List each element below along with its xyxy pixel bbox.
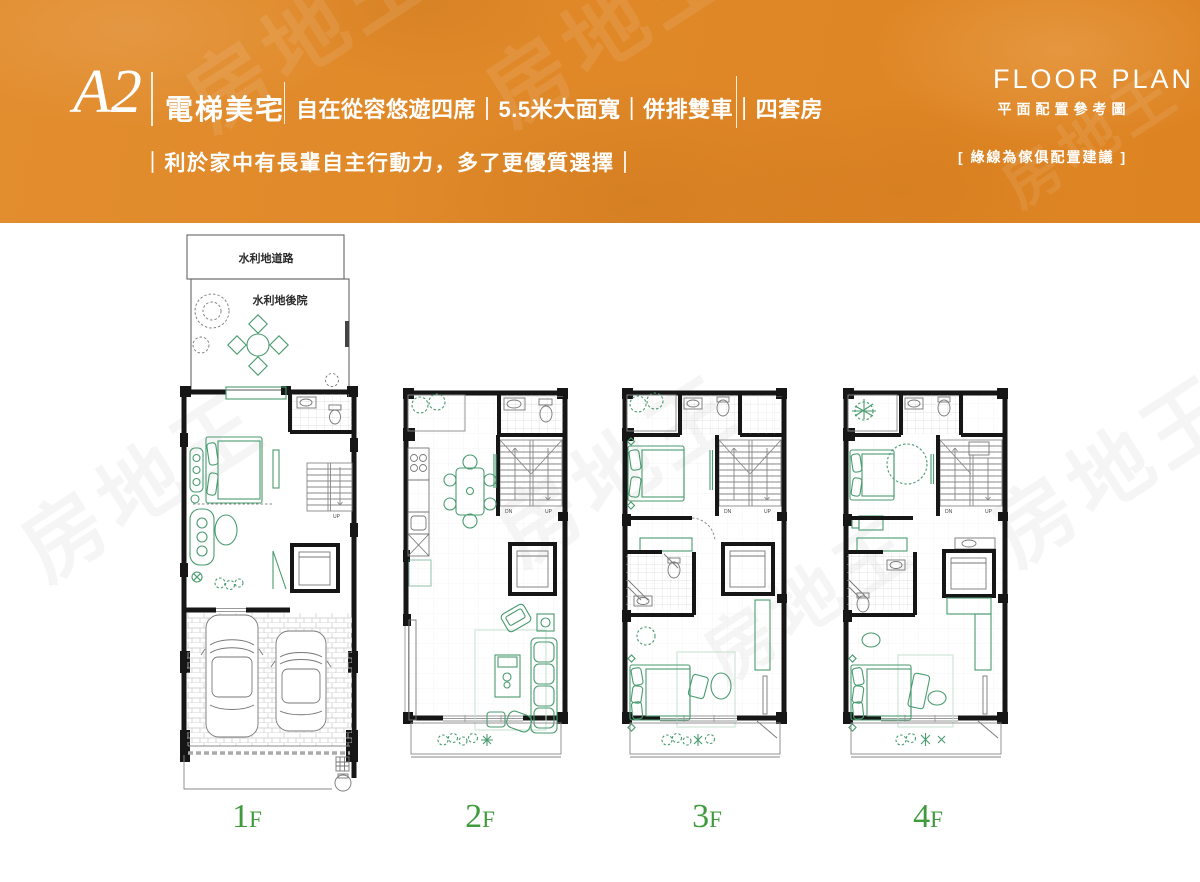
floor-suffix: F — [709, 807, 722, 832]
legend-note: [ 綠線為傢俱配置建議 ] — [958, 147, 1138, 167]
floor-number: 1 — [232, 798, 249, 835]
stairs: UP — [307, 463, 352, 520]
bench-seat — [190, 448, 203, 503]
patio-table-set — [228, 315, 288, 375]
floor-suffix: F — [482, 807, 495, 832]
yard: 水利地道路 水利地後院 — [187, 235, 349, 390]
svg-text:UP: UP — [545, 509, 553, 515]
floor-suffix: F — [930, 807, 943, 832]
bathroom — [499, 393, 565, 435]
svg-text:DN: DN — [505, 509, 513, 515]
bathroom-2 — [626, 552, 694, 615]
svg-text:DN: DN — [945, 509, 953, 515]
bathroom — [290, 392, 354, 432]
watermark: 房地王 — [459, 0, 750, 148]
floor-suffix: F — [249, 807, 262, 832]
svg-text:UP: UP — [985, 509, 993, 515]
bush — [193, 337, 209, 353]
car-2 — [271, 631, 331, 731]
floor-label-2f: 2F — [450, 798, 510, 840]
tagline: 自在從容悠遊四席｜5.5米大面寬｜併排雙車｜四套房 — [296, 92, 823, 124]
floor-drain — [192, 572, 202, 582]
chaise-sofa — [190, 509, 214, 565]
floor-number: 2 — [465, 798, 482, 835]
backyard-label: 水利地後院 — [253, 293, 308, 307]
garage — [184, 609, 352, 792]
floor-plan-2f: DN UP — [403, 388, 568, 773]
divider — [736, 76, 737, 128]
svg-text:UP: UP — [333, 514, 341, 520]
floor-number: 3 — [692, 798, 709, 835]
floor-number: 4 — [913, 798, 930, 835]
entry-steps — [226, 387, 286, 399]
road-label: 水利地道路 — [239, 251, 295, 265]
door-panel — [273, 551, 286, 589]
tree — [195, 294, 229, 328]
bathroom-2 — [847, 552, 915, 615]
side-table — [215, 515, 237, 545]
balcony — [630, 723, 780, 757]
car-1 — [201, 615, 263, 737]
page: 房地王 房地王 房地王 A2 電梯美宅 自在從容悠遊四席｜5.5米大面寬｜併排雙… — [0, 0, 1200, 882]
bed — [206, 437, 262, 503]
bathroom — [680, 393, 784, 435]
bush — [326, 374, 339, 387]
balcony — [851, 723, 1001, 757]
subtitle: ｜利於家中有長輩自主行動力，多了更優質選擇｜ — [142, 147, 637, 177]
svg-text:UP: UP — [764, 509, 772, 515]
floor-plan-1f: 水利地道路 水利地後院 — [180, 233, 358, 793]
floor-label-3f: 3F — [677, 798, 737, 840]
plant — [215, 578, 243, 590]
floor-plan-title-zh: 平面配置參考圖 — [993, 99, 1135, 119]
cabinet — [273, 450, 279, 488]
watermark: 房地王 — [159, 0, 450, 153]
divider — [151, 72, 153, 126]
header-banner: 房地王 房地王 房地王 A2 電梯美宅 自在從容悠遊四席｜5.5米大面寬｜併排雙… — [0, 0, 1200, 223]
floor-label-4f: 4F — [898, 798, 958, 840]
elevator — [292, 545, 338, 591]
floor-plan-4f: DN UP — [843, 388, 1008, 773]
unit-name: 電梯美宅 — [165, 88, 285, 128]
floor-plan-3f: DN UP — [622, 388, 787, 773]
svg-text:DN: DN — [724, 509, 732, 515]
floor-label-1f: 1F — [217, 798, 277, 840]
floor-plan-title-en: FLOOR PLAN — [993, 64, 1135, 95]
divider — [284, 82, 285, 124]
unit-code: A2 — [73, 58, 142, 126]
utility-box — [335, 757, 351, 791]
